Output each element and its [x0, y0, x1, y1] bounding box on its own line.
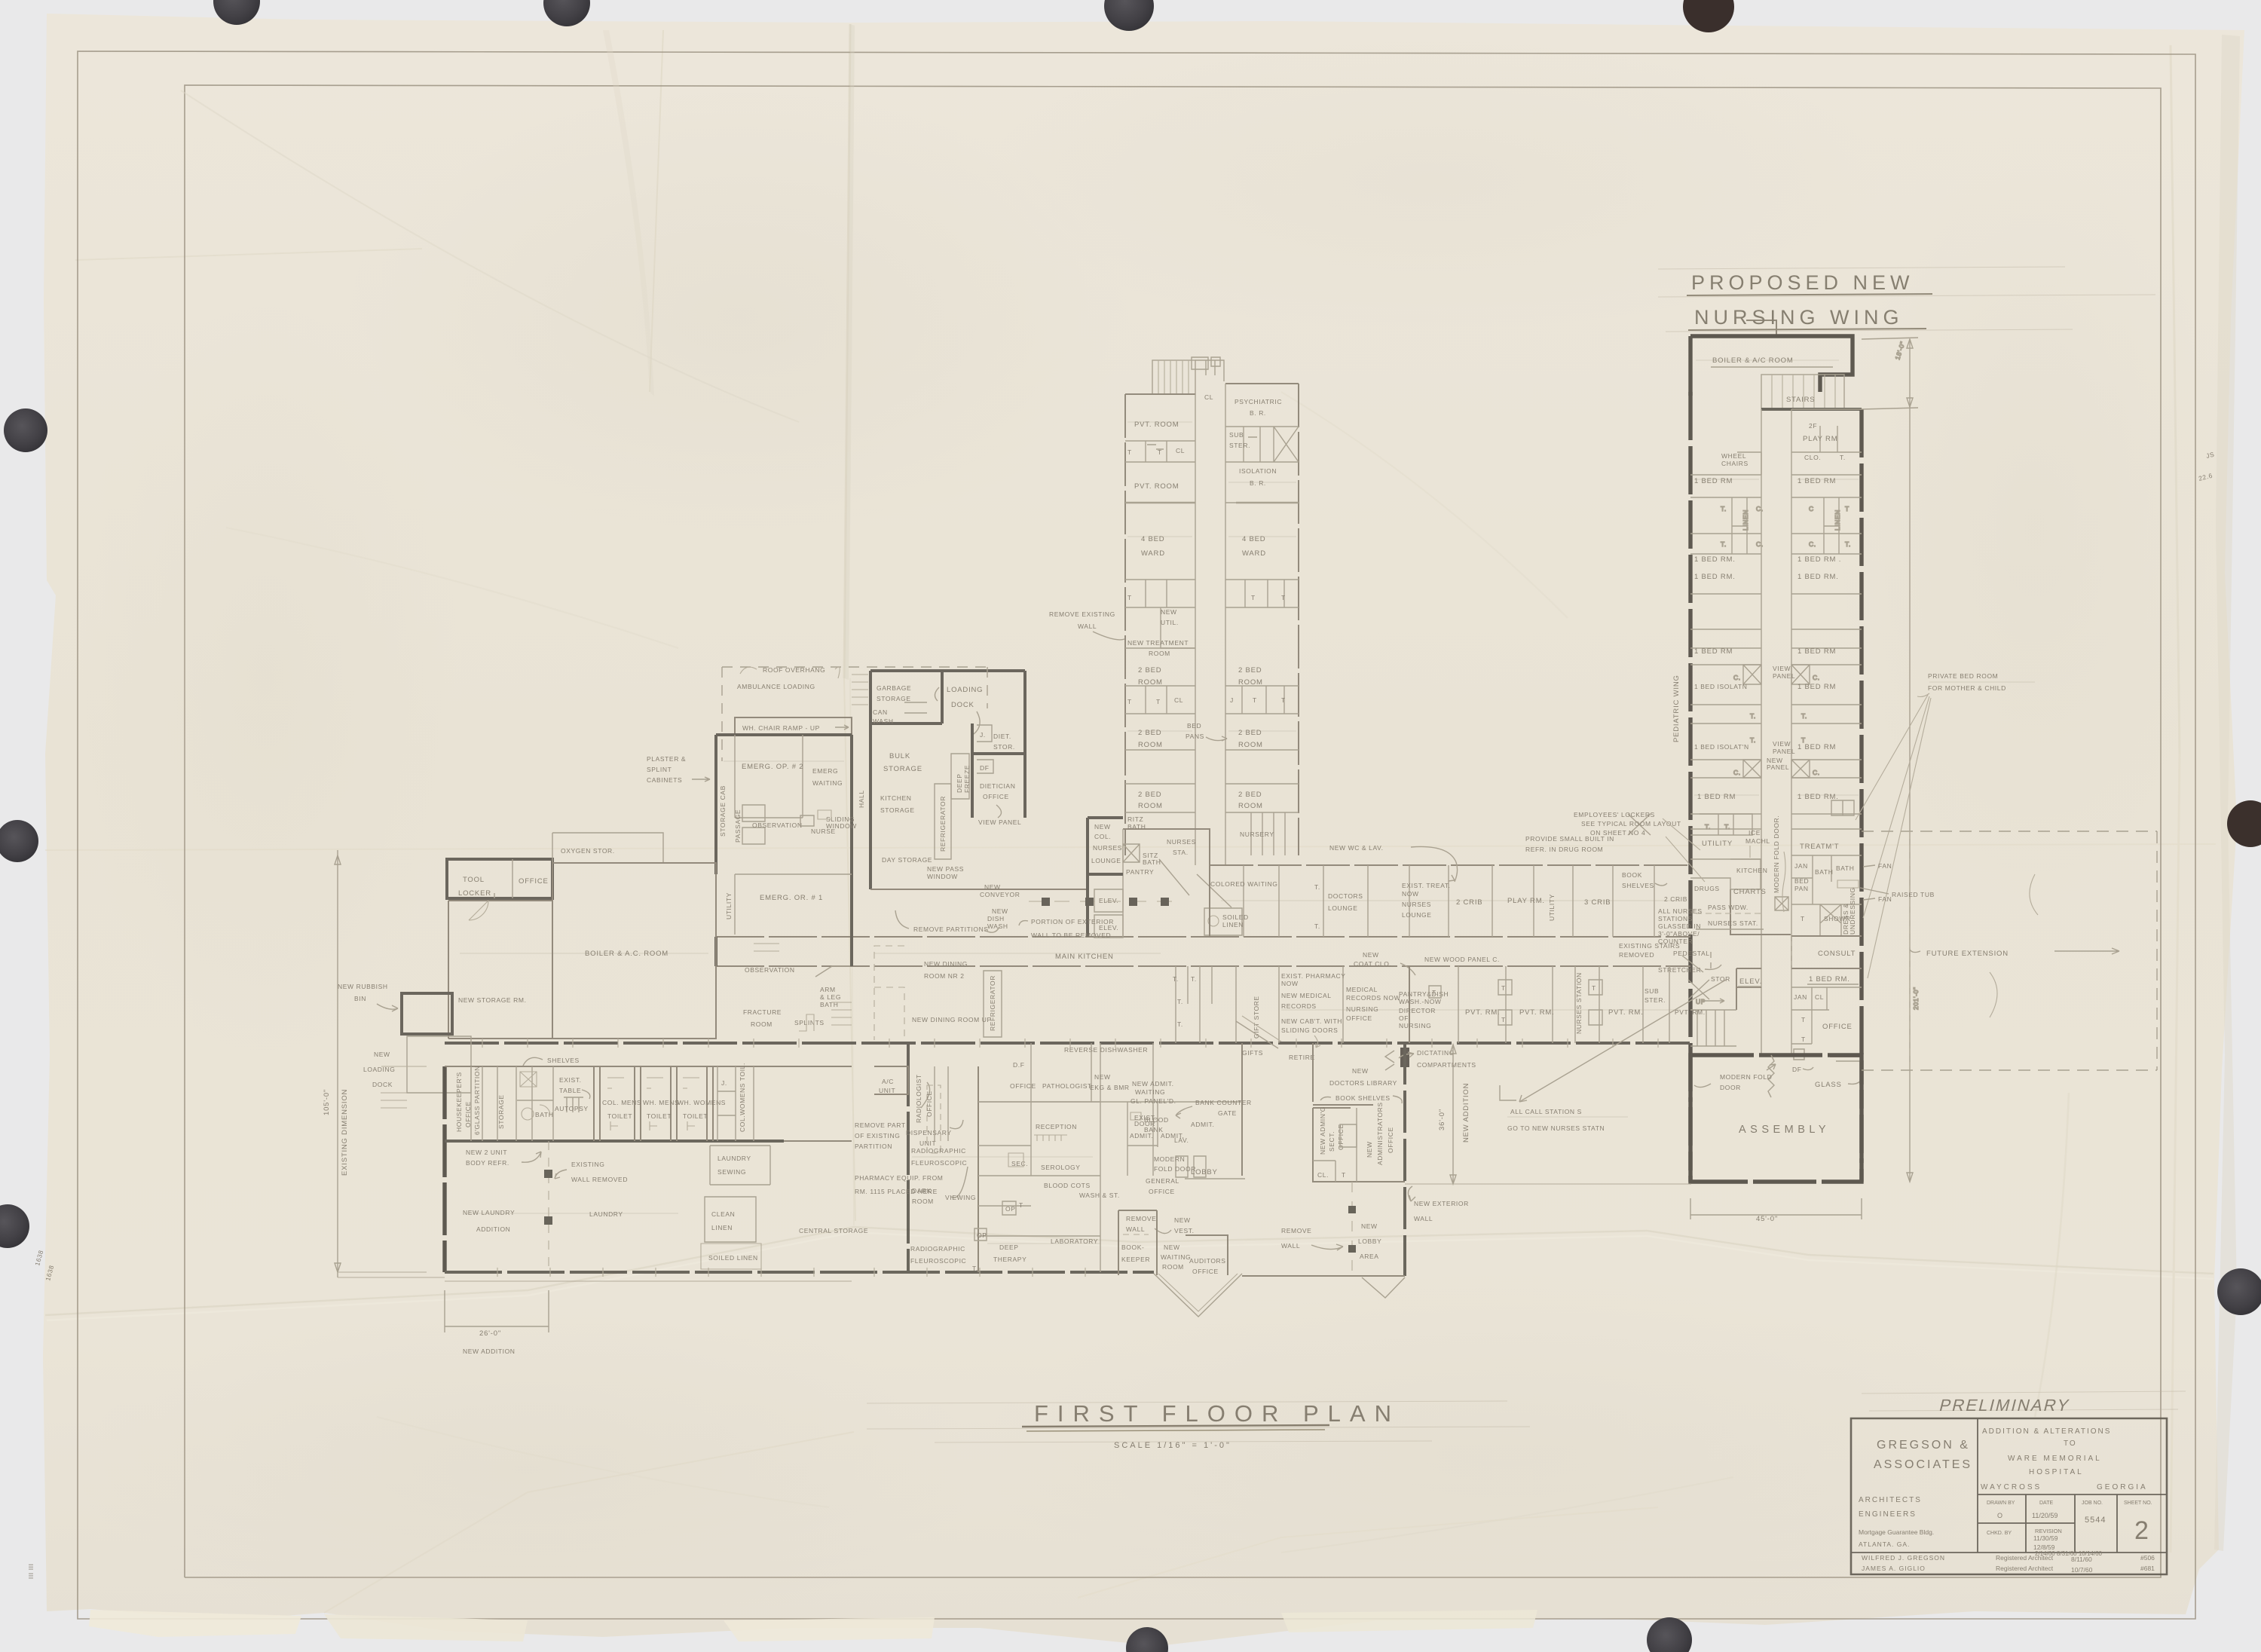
svg-text:EXIST. TREAT.: EXIST. TREAT. — [1402, 882, 1451, 889]
svg-text:ADMIT.: ADMIT. — [1191, 1121, 1214, 1128]
svg-text:BANK COUNTER: BANK COUNTER — [1195, 1099, 1252, 1106]
svg-text:LINEN: LINEN — [1834, 509, 1841, 531]
svg-text:1 BED RM.: 1 BED RM. — [1809, 975, 1850, 984]
svg-text:TREATM'T: TREATM'T — [1800, 843, 1839, 851]
svg-text:GEORGIA: GEORGIA — [2097, 1483, 2148, 1491]
svg-text:OFFICE: OFFICE — [1337, 1124, 1345, 1150]
svg-text:PAN: PAN — [1794, 885, 1809, 892]
svg-text:WASH: WASH — [873, 717, 894, 725]
svg-text:T.: T. — [1801, 712, 1807, 720]
svg-text:3'-0"ABOVE/: 3'-0"ABOVE/ — [1658, 930, 1700, 938]
svg-text:LINEN: LINEN — [1222, 921, 1244, 928]
svg-text:ADMINISTRATORS: ADMINISTRATORS — [1376, 1102, 1384, 1165]
svg-text:T.: T. — [1750, 736, 1756, 744]
svg-text:T: T — [1281, 594, 1286, 601]
svg-text:PVT. RM.: PVT. RM. — [1465, 1008, 1501, 1017]
svg-text:DOCTORS LIBRARY: DOCTORS LIBRARY — [1329, 1079, 1397, 1087]
svg-text:C.: C. — [1733, 674, 1741, 681]
svg-text:BED: BED — [1187, 722, 1201, 730]
svg-text:NEW: NEW — [992, 907, 1008, 915]
svg-text:CL: CL — [1176, 447, 1185, 454]
svg-text:FAN: FAN — [1878, 895, 1892, 903]
svg-text:LAUNDRY: LAUNDRY — [717, 1155, 751, 1162]
svg-text:ROOM NR 2: ROOM NR 2 — [924, 972, 965, 980]
svg-text:J.: J. — [980, 731, 986, 739]
svg-text:DF: DF — [980, 764, 990, 772]
svg-text:T: T — [1592, 984, 1596, 992]
svg-text:HOSPITAL: HOSPITAL — [2029, 1468, 2084, 1476]
svg-text:JAN: JAN — [1794, 862, 1808, 870]
svg-text:Mortgage Guarantee Bldg.: Mortgage Guarantee Bldg. — [1859, 1528, 1934, 1536]
svg-text:DOCK: DOCK — [951, 701, 974, 709]
svg-text:DF: DF — [1792, 1066, 1802, 1073]
svg-text:1 BED RM.: 1 BED RM. — [1797, 573, 1839, 581]
svg-text:ADMIT.: ADMIT. — [1130, 1132, 1153, 1140]
svg-text:B. R.: B. R. — [1250, 409, 1266, 417]
svg-text:201'-0": 201'-0" — [1912, 987, 1920, 1010]
svg-text:NEW 2 UNIT: NEW 2 UNIT — [466, 1149, 507, 1156]
svg-text:1 BED ISOLAT'N: 1 BED ISOLAT'N — [1694, 743, 1749, 751]
svg-text:PANEL: PANEL — [1767, 763, 1789, 771]
svg-text:STOR.: STOR. — [993, 743, 1015, 751]
svg-text:T: T — [1127, 594, 1132, 601]
svg-text:OF: OF — [1399, 1014, 1409, 1022]
svg-text:LOCKER: LOCKER — [458, 889, 491, 898]
svg-text:#506: #506 — [2140, 1554, 2155, 1562]
svg-text:WALL: WALL — [1414, 1215, 1433, 1222]
svg-text:NEW ADDITION: NEW ADDITION — [463, 1348, 516, 1355]
svg-text:NEW WOOD PANEL C.: NEW WOOD PANEL C. — [1424, 956, 1500, 963]
svg-text:PANEL: PANEL — [1773, 748, 1795, 755]
svg-text:PRIVATE BED ROOM: PRIVATE BED ROOM — [1928, 672, 1998, 680]
svg-text:CL.: CL. — [1317, 1171, 1329, 1179]
svg-text:NEW STORAGE RM.: NEW STORAGE RM. — [458, 996, 527, 1004]
svg-text:#681: #681 — [2140, 1565, 2155, 1572]
svg-text:SUB: SUB — [1645, 987, 1659, 995]
svg-text:NURSERY: NURSERY — [1240, 831, 1274, 838]
svg-text:NEW ADMIT.: NEW ADMIT. — [1132, 1080, 1174, 1088]
svg-text:C.: C. — [1756, 540, 1764, 548]
svg-text:ALL NURSES: ALL NURSES — [1658, 907, 1703, 915]
svg-text:36'-0": 36'-0" — [1438, 1109, 1446, 1130]
svg-text:PVT. ROOM: PVT. ROOM — [1134, 421, 1179, 429]
svg-text:1 BED RM: 1 BED RM — [1697, 793, 1736, 801]
svg-text:VIEW PANEL: VIEW PANEL — [978, 818, 1021, 826]
svg-text:NURSING: NURSING — [1346, 1005, 1378, 1013]
svg-text:NURSES: NURSES — [1167, 838, 1196, 846]
svg-text:GL. PANEL'D.: GL. PANEL'D. — [1130, 1097, 1176, 1105]
svg-text:EMERG. OR. # 1: EMERG. OR. # 1 — [760, 894, 823, 902]
svg-text:TO: TO — [2064, 1439, 2077, 1448]
svg-text:NEW: NEW — [1094, 1073, 1111, 1081]
svg-text:STATIONS: STATIONS — [1658, 915, 1693, 922]
svg-text:45'-0": 45'-0" — [1756, 1215, 1778, 1223]
svg-text:MEDICAL: MEDICAL — [1346, 986, 1378, 993]
svg-text:RECORDS: RECORDS — [1281, 1002, 1317, 1010]
svg-text:NEW ADMIN'G: NEW ADMIN'G — [1319, 1106, 1326, 1155]
svg-text:CABINETS: CABINETS — [647, 776, 682, 784]
svg-text:REVERSE DISHWASHER: REVERSE DISHWASHER — [1064, 1046, 1148, 1054]
svg-text:NEW: NEW — [1352, 1067, 1369, 1075]
svg-text:T: T — [1801, 1036, 1806, 1043]
svg-text:ROOF OVERHANG: ROOF OVERHANG — [763, 666, 825, 674]
svg-text:KITCHEN: KITCHEN — [1736, 867, 1768, 874]
svg-text:UNIT: UNIT — [879, 1087, 895, 1094]
svg-text:REFR. IN DRUG ROOM: REFR. IN DRUG ROOM — [1525, 846, 1603, 853]
svg-text:FOLD DOOR: FOLD DOOR — [1154, 1165, 1196, 1173]
svg-text:HOUSEKEEPER'S: HOUSEKEEPER'S — [455, 1072, 463, 1132]
svg-text:26'-0": 26'-0" — [479, 1329, 501, 1338]
svg-text:BOOK-: BOOK- — [1121, 1244, 1144, 1251]
svg-text:ICE: ICE — [1749, 829, 1761, 837]
svg-text:OFFICE: OFFICE — [464, 1101, 472, 1127]
svg-text:ELEV.: ELEV. — [1739, 977, 1762, 986]
svg-text:NURSES STAT.: NURSES STAT. — [1708, 919, 1758, 927]
svg-text:SUB: SUB — [1229, 431, 1244, 439]
svg-text:SCALE 1/16" = 1'-0": SCALE 1/16" = 1'-0" — [1114, 1441, 1231, 1450]
svg-text:DEEP: DEEP — [956, 773, 963, 793]
svg-text:DIETICIAN: DIETICIAN — [980, 782, 1015, 790]
svg-text:OFFICE: OFFICE — [1149, 1188, 1175, 1195]
svg-text:FLEUROSCOPIC: FLEUROSCOPIC — [910, 1257, 966, 1265]
svg-text:D.F: D.F — [1013, 1061, 1025, 1069]
svg-text:WARE MEMORIAL: WARE MEMORIAL — [2008, 1455, 2102, 1463]
svg-text:C.: C. — [1733, 769, 1741, 776]
svg-text:ROOM: ROOM — [1162, 1263, 1184, 1271]
svg-text:PROPOSED NEW: PROPOSED NEW — [1691, 271, 1914, 294]
svg-text:NURSING WING: NURSING WING — [1694, 306, 1904, 329]
svg-text:BOILER & A/C ROOM: BOILER & A/C ROOM — [1712, 356, 1794, 365]
svg-text:WALL: WALL — [1126, 1225, 1145, 1233]
svg-text:T.: T. — [1191, 975, 1197, 983]
svg-text:SOILED LINEN: SOILED LINEN — [708, 1254, 758, 1262]
svg-text:1 BED RM: 1 BED RM — [1797, 477, 1836, 485]
svg-text:PLAY RM.: PLAY RM. — [1507, 897, 1545, 905]
svg-text:PASSAGE: PASSAGE — [734, 809, 742, 843]
svg-text:NEW WC & LAV.: NEW WC & LAV. — [1329, 844, 1384, 852]
svg-text:NEW DINING ROOM UP: NEW DINING ROOM UP — [912, 1016, 992, 1023]
svg-text:MODERN FOLD: MODERN FOLD — [1720, 1073, 1772, 1081]
svg-text:WH. MENS: WH. MENS — [643, 1099, 679, 1106]
svg-text:WASH: WASH — [987, 922, 1008, 930]
svg-text:T: T — [1281, 696, 1286, 704]
svg-text:DOOR: DOOR — [1134, 1120, 1155, 1127]
svg-text:6'GLASS PARTITION: 6'GLASS PARTITION — [473, 1066, 481, 1135]
svg-text:NEW EXTERIOR: NEW EXTERIOR — [1414, 1200, 1469, 1207]
svg-text:EXISTING DIMENSION: EXISTING DIMENSION — [341, 1089, 349, 1176]
svg-text:1 BED RM: 1 BED RM — [1797, 647, 1836, 656]
svg-text:PARTITION: PARTITION — [855, 1143, 892, 1150]
svg-text:UTILITY: UTILITY — [1548, 894, 1556, 921]
svg-text:Registered Architect: Registered Architect — [1996, 1565, 2054, 1572]
svg-text:LABORATORY: LABORATORY — [1051, 1237, 1098, 1245]
svg-text:BATH: BATH — [535, 1111, 553, 1118]
svg-text:2 BED: 2 BED — [1138, 666, 1161, 675]
svg-text:SEROLOGY: SEROLOGY — [1041, 1164, 1081, 1171]
svg-text:GLASS: GLASS — [1815, 1081, 1842, 1089]
svg-text:RADIOGRAPHIC: RADIOGRAPHIC — [910, 1245, 965, 1253]
svg-text:ENGINEERS: ENGINEERS — [1859, 1510, 1917, 1519]
svg-text:BOOK: BOOK — [1622, 871, 1642, 879]
svg-text:DISPENSARY: DISPENSARY — [906, 1129, 952, 1137]
svg-text:DICTATING: DICTATING — [1417, 1049, 1455, 1057]
svg-text:TOILET: TOILET — [607, 1112, 632, 1120]
svg-text:OFFICE: OFFICE — [1822, 1023, 1853, 1031]
svg-text:T.: T. — [1314, 922, 1320, 930]
svg-text:WAITING: WAITING — [812, 779, 843, 787]
svg-text:T: T — [1501, 984, 1506, 992]
svg-text:CAN: CAN — [873, 708, 888, 716]
svg-text:REMOVE PART: REMOVE PART — [855, 1121, 906, 1129]
svg-text:CONSULT: CONSULT — [1818, 950, 1856, 958]
svg-text:WARD: WARD — [1242, 549, 1266, 558]
svg-text:LOBBY: LOBBY — [1358, 1237, 1381, 1245]
svg-text:OFFICE: OFFICE — [926, 1091, 933, 1117]
svg-text:CL: CL — [1174, 696, 1183, 704]
svg-text:PLASTER &: PLASTER & — [647, 755, 686, 763]
svg-text:OXYGEN STOR.: OXYGEN STOR. — [561, 847, 615, 855]
svg-text:WARD: WARD — [1141, 549, 1165, 558]
svg-text:ROOM: ROOM — [1138, 741, 1163, 749]
svg-text:1 BED RM.: 1 BED RM. — [1694, 573, 1736, 581]
svg-text:OFFICE: OFFICE — [1346, 1014, 1372, 1022]
svg-text:LOADING: LOADING — [947, 686, 983, 694]
svg-text:2 CRIB: 2 CRIB — [1456, 898, 1482, 907]
svg-text:OFFICE: OFFICE — [983, 793, 1009, 800]
svg-text:C: C — [1809, 505, 1814, 512]
svg-text:SHELVES: SHELVES — [1622, 882, 1654, 889]
svg-text:EXISTING: EXISTING — [571, 1161, 604, 1168]
svg-text:T: T — [1845, 505, 1849, 512]
svg-text:WAYCROSS: WAYCROSS — [1981, 1483, 2042, 1491]
svg-text:THERAPY: THERAPY — [993, 1256, 1026, 1263]
svg-text:DIRECTOR: DIRECTOR — [1399, 1007, 1436, 1014]
svg-text:GO TO NEW NURSES STATN: GO TO NEW NURSES STATN — [1507, 1124, 1605, 1132]
svg-text:NEW DINING: NEW DINING — [924, 960, 968, 968]
svg-text:WINDOW: WINDOW — [927, 873, 958, 880]
svg-text:J: J — [1230, 696, 1234, 704]
svg-text:COL. MENS: COL. MENS — [602, 1099, 641, 1106]
svg-text:2 BED: 2 BED — [1138, 729, 1161, 737]
svg-text:COLORED WAITING: COLORED WAITING — [1210, 880, 1277, 888]
svg-text:AMBULANCE LOADING: AMBULANCE LOADING — [737, 683, 815, 690]
svg-text:UNDRESSING: UNDRESSING — [1849, 887, 1856, 935]
svg-text:T: T — [1342, 1171, 1346, 1179]
svg-text:PLAY RM: PLAY RM — [1803, 435, 1837, 443]
svg-text:10/7/60: 10/7/60 — [2071, 1566, 2093, 1574]
svg-text:LAUNDRY: LAUNDRY — [589, 1210, 623, 1218]
svg-text:STER.: STER. — [1229, 442, 1250, 449]
svg-text:DATE: DATE — [2039, 1501, 2053, 1506]
svg-text:CHKD. BY: CHKD. BY — [1987, 1531, 2012, 1536]
svg-text:VIEW: VIEW — [1773, 665, 1791, 672]
svg-text:T.: T. — [1314, 883, 1320, 891]
svg-text:JOB NO.: JOB NO. — [2082, 1501, 2103, 1506]
svg-text:COL.: COL. — [1094, 833, 1111, 840]
svg-text:ALL CALL STATION S: ALL CALL STATION S — [1510, 1108, 1582, 1115]
svg-text:STORAGE: STORAGE — [880, 806, 915, 814]
svg-text:ON SHEET NO 4: ON SHEET NO 4 — [1590, 829, 1645, 837]
svg-text:1 BED RM .: 1 BED RM . — [1797, 555, 1841, 564]
svg-text:NEW: NEW — [374, 1051, 390, 1058]
svg-text:PORTION OF EXTERIOR: PORTION OF EXTERIOR — [1031, 918, 1114, 925]
svg-text:RADIOLOGIST: RADIOLOGIST — [915, 1074, 922, 1123]
svg-text:STORAGE: STORAGE — [877, 695, 911, 702]
svg-text:FLEUROSCOPIC: FLEUROSCOPIC — [911, 1159, 967, 1167]
svg-text:T: T — [1251, 594, 1256, 601]
svg-text:AUTOPSY: AUTOPSY — [555, 1105, 589, 1112]
svg-text:NURSES: NURSES — [1402, 901, 1431, 908]
svg-text:4 BED: 4 BED — [1242, 535, 1265, 543]
svg-text:MODERN FOLD DOOR.: MODERN FOLD DOOR. — [1773, 815, 1780, 893]
svg-text:GLASSED IN: GLASSED IN — [1658, 922, 1701, 930]
svg-text:T: T — [1156, 698, 1161, 705]
svg-text:BOOK SHELVES: BOOK SHELVES — [1335, 1094, 1391, 1102]
svg-text:C.: C. — [1813, 769, 1820, 776]
svg-text:T.: T. — [1173, 975, 1179, 983]
svg-text:WALL TO BE REMOVED: WALL TO BE REMOVED — [1031, 932, 1111, 939]
svg-text:ROOM: ROOM — [1238, 802, 1263, 810]
svg-text:EMPLOYEES' LOCKERS: EMPLOYEES' LOCKERS — [1574, 811, 1655, 818]
svg-text:ROOM: ROOM — [751, 1020, 773, 1028]
svg-text:1 BED RM: 1 BED RM — [1797, 683, 1836, 691]
svg-text:WINDOW: WINDOW — [826, 822, 857, 830]
svg-text:DOCTORS: DOCTORS — [1328, 892, 1363, 900]
svg-text:RITZ: RITZ — [1127, 815, 1143, 823]
svg-text:CONVEYOR: CONVEYOR — [980, 891, 1020, 898]
svg-text:LINEN: LINEN — [711, 1224, 733, 1231]
svg-text:AREA: AREA — [1360, 1253, 1379, 1260]
svg-text:CHAIRS: CHAIRS — [1721, 460, 1749, 467]
svg-text:WH. CHAIR RAMP - UP: WH. CHAIR RAMP - UP — [742, 724, 820, 732]
svg-text:MODERN: MODERN — [1154, 1155, 1185, 1163]
svg-text:NEW: NEW — [1363, 951, 1379, 959]
svg-text:KITCHEN: KITCHEN — [880, 794, 912, 802]
svg-text:ASSEMBLY: ASSEMBLY — [1739, 1124, 1830, 1136]
svg-text:PEDESTAL: PEDESTAL — [1673, 950, 1710, 957]
svg-text:OBSERVATION: OBSERVATION — [752, 821, 803, 829]
svg-text:JAMES A. GIGLIO: JAMES A. GIGLIO — [1862, 1565, 1926, 1572]
svg-text:WHEEL: WHEEL — [1721, 452, 1746, 460]
svg-text:NEW: NEW — [984, 883, 1001, 891]
svg-text:VEST.: VEST. — [1174, 1227, 1195, 1234]
svg-text:REMOVE PARTITIONS: REMOVE PARTITIONS — [913, 925, 989, 933]
svg-text:LOUNGE: LOUNGE — [1328, 904, 1358, 912]
svg-text:& LEG: & LEG — [820, 993, 841, 1001]
svg-text:1 BED RM.: 1 BED RM. — [1694, 555, 1736, 564]
svg-text:BULK: BULK — [889, 752, 910, 760]
svg-text:NEW: NEW — [1161, 608, 1177, 616]
svg-text:NEW MEDICAL: NEW MEDICAL — [1281, 992, 1332, 999]
svg-text:ROOM: ROOM — [1238, 741, 1263, 749]
svg-text:ROOM: ROOM — [1238, 678, 1263, 687]
svg-text:NEW: NEW — [1094, 823, 1111, 831]
svg-text:BATH: BATH — [1127, 823, 1146, 831]
svg-text:PVT. RM.: PVT. RM. — [1519, 1008, 1555, 1017]
svg-text:105'-0": 105'-0" — [323, 1089, 331, 1115]
svg-text:ASSOCIATES: ASSOCIATES — [1874, 1458, 1972, 1471]
svg-text:ELEV.: ELEV. — [1099, 897, 1118, 904]
svg-text:EMERG. OP. # 2: EMERG. OP. # 2 — [742, 763, 803, 771]
svg-text:2F: 2F — [1809, 422, 1817, 430]
svg-text:T: T — [1253, 696, 1257, 704]
svg-text:SLIDING DOORS: SLIDING DOORS — [1281, 1026, 1338, 1034]
svg-text:T: T — [1019, 1201, 1023, 1209]
svg-text:NEW LAUNDRY: NEW LAUNDRY — [463, 1209, 515, 1216]
svg-text:A/C: A/C — [882, 1078, 894, 1085]
svg-text:ADDITION: ADDITION — [476, 1225, 510, 1233]
svg-text:WASH & ST.: WASH & ST. — [1079, 1192, 1120, 1199]
svg-text:LOUNGE: LOUNGE — [1091, 857, 1121, 864]
svg-text:COMPARTMENTS: COMPARTMENTS — [1417, 1061, 1476, 1069]
svg-text:ADDITION & ALTERATIONS: ADDITION & ALTERATIONS — [1982, 1427, 2111, 1436]
svg-text:O: O — [1997, 1512, 2002, 1519]
svg-text:FAN: FAN — [1878, 862, 1892, 870]
svg-text:NEW RUBBISH: NEW RUBBISH — [338, 983, 388, 990]
svg-text:SECT.: SECT. — [1328, 1131, 1335, 1152]
svg-text:BATH: BATH — [1815, 868, 1833, 876]
svg-text:REFRIGERATOR: REFRIGERATOR — [939, 796, 947, 852]
svg-text:PVT. RM.: PVT. RM. — [1675, 1008, 1706, 1016]
svg-text:REMOVE EXISTING: REMOVE EXISTING — [1049, 610, 1115, 618]
svg-text:TOILET: TOILET — [647, 1112, 672, 1120]
svg-text:ADMIT.: ADMIT. — [1161, 1132, 1184, 1140]
svg-text:SPLINT: SPLINT — [647, 766, 672, 773]
svg-text:PATHOLOGIST: PATHOLOGIST — [1042, 1082, 1092, 1090]
svg-text:RECORDS NOW: RECORDS NOW — [1346, 994, 1400, 1002]
svg-text:8/11/60: 8/11/60 — [2071, 1556, 2092, 1563]
svg-text:11/30/59: 11/30/59 — [2033, 1534, 2058, 1542]
svg-text:T.: T. — [1177, 1020, 1183, 1028]
svg-text:C.: C. — [1809, 540, 1816, 548]
svg-text:FIRST FLOOR PLAN: FIRST FLOOR PLAN — [1034, 1400, 1400, 1427]
svg-text:LINEN: LINEN — [1742, 509, 1749, 531]
svg-text:ARCHITECTS: ARCHITECTS — [1859, 1496, 1922, 1504]
svg-text:STRETCHER: STRETCHER — [1658, 966, 1701, 974]
svg-text:SHEET NO.: SHEET NO. — [2124, 1501, 2152, 1506]
svg-text:ARM: ARM — [820, 986, 836, 993]
svg-text:NEW: NEW — [1361, 1222, 1378, 1230]
svg-text:GARBAGE: GARBAGE — [877, 684, 911, 692]
svg-text:CL: CL — [1815, 993, 1824, 1001]
svg-text:PEDIATRIC WING: PEDIATRIC WING — [1672, 675, 1681, 742]
svg-text:SHELVES: SHELVES — [547, 1057, 580, 1064]
svg-text:NURSES: NURSES — [1093, 844, 1122, 852]
svg-text:STORAGE: STORAGE — [497, 1094, 505, 1129]
svg-text:PRELIMINARY: PRELIMINARY — [1938, 1396, 2073, 1415]
svg-text:NOW: NOW — [1281, 980, 1299, 987]
svg-text:STOR: STOR — [1711, 975, 1730, 983]
svg-text:MAIN KITCHEN: MAIN KITCHEN — [1055, 953, 1114, 961]
svg-text:CL: CL — [1204, 393, 1213, 401]
svg-text:EXIST.: EXIST. — [559, 1076, 582, 1084]
svg-text:RETIRE: RETIRE — [1289, 1054, 1315, 1061]
svg-text:T: T — [1127, 448, 1132, 456]
svg-text:FUTURE EXTENSION: FUTURE EXTENSION — [1926, 950, 2009, 958]
svg-text:JAN: JAN — [1794, 993, 1807, 1001]
svg-text:ROOM: ROOM — [912, 1198, 934, 1205]
svg-text:GIFTS: GIFTS — [1242, 1049, 1263, 1057]
svg-text:11/20/59: 11/20/59 — [2032, 1512, 2058, 1519]
svg-text:T.: T. — [1177, 998, 1183, 1005]
svg-text:GREGSON &: GREGSON & — [1877, 1439, 1970, 1452]
svg-text:DRUGS: DRUGS — [1694, 885, 1720, 892]
svg-text:C.: C. — [1756, 505, 1764, 512]
svg-text:OFFICE: OFFICE — [1387, 1127, 1394, 1153]
svg-text:LOBBY: LOBBY — [1191, 1168, 1218, 1176]
svg-text:FRACTURE: FRACTURE — [743, 1008, 782, 1016]
svg-text:B. R.: B. R. — [1250, 479, 1266, 487]
